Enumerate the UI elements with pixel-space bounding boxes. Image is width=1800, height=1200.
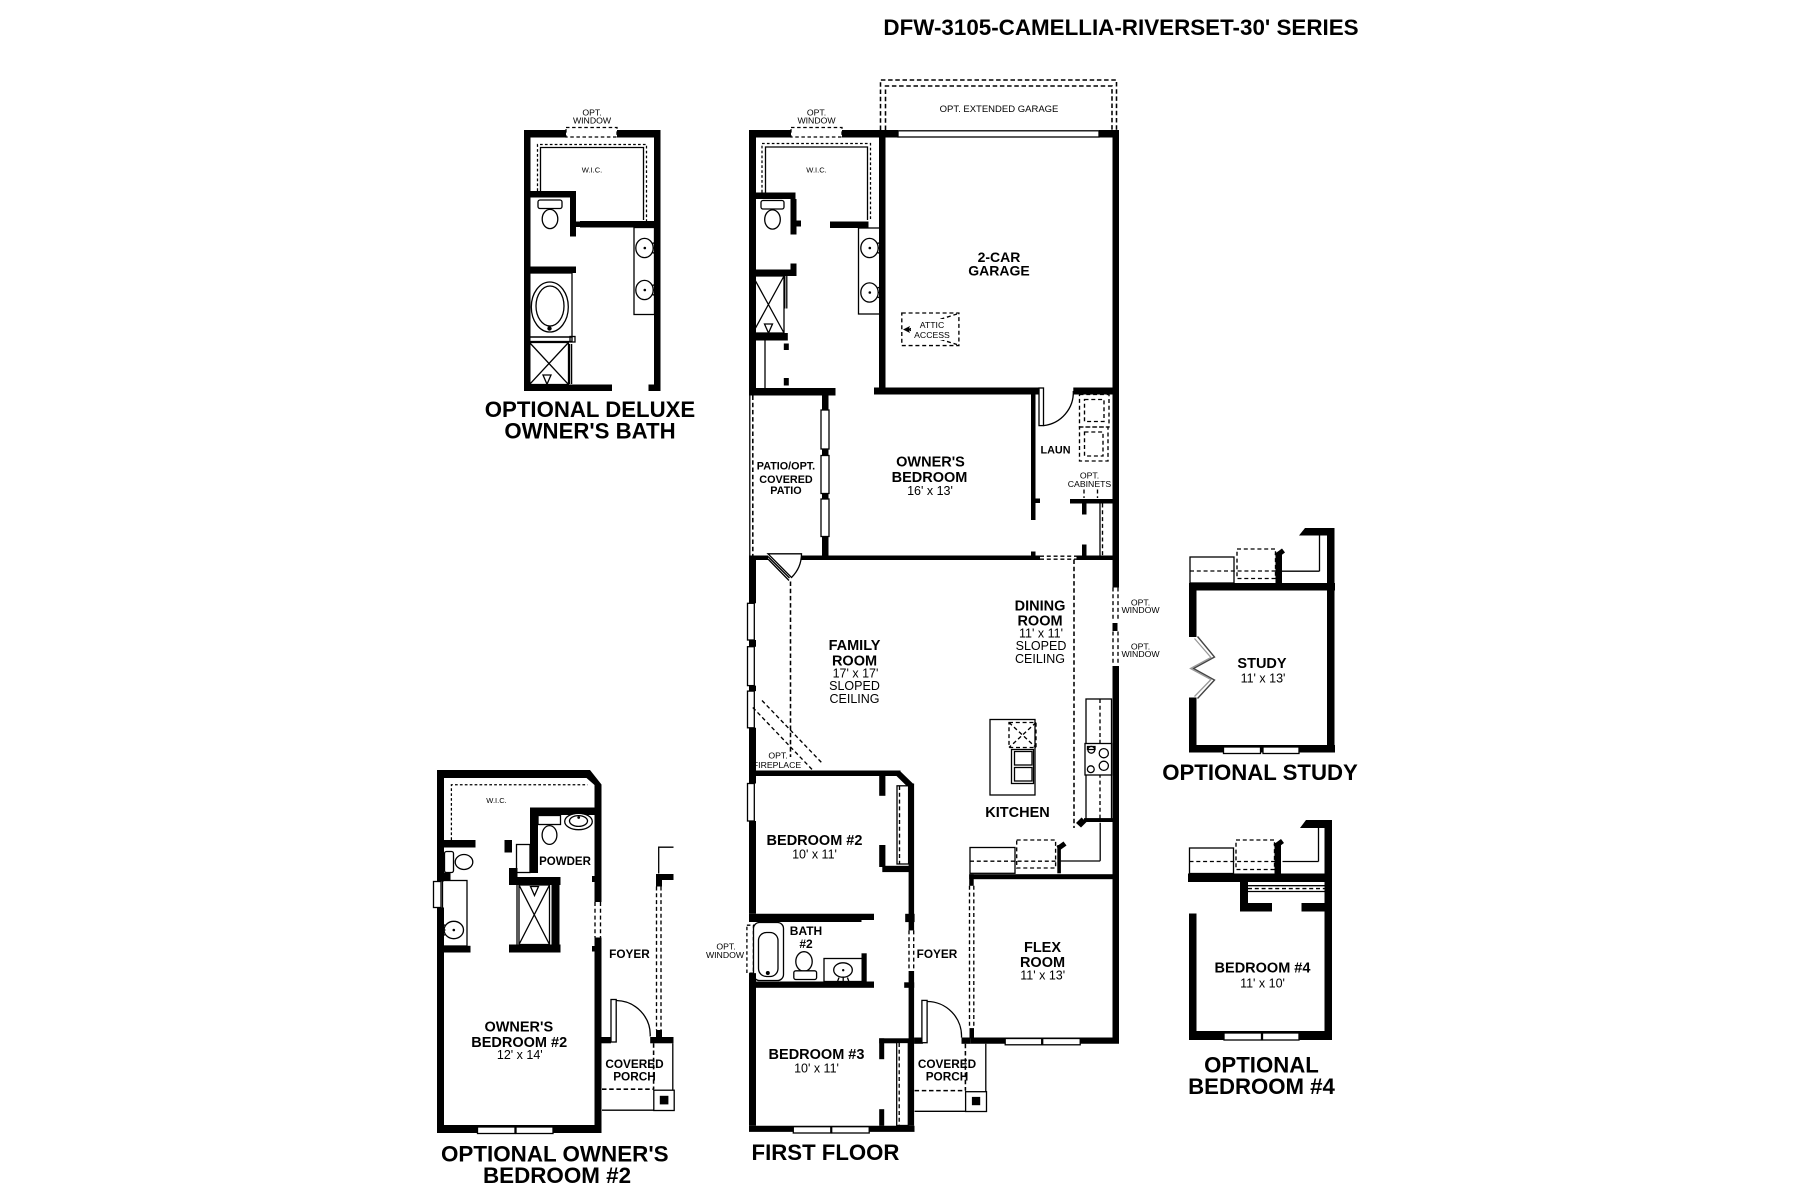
svg-text:CABINETS: CABINETS xyxy=(1068,479,1112,489)
svg-text:DINING: DINING xyxy=(1015,599,1066,615)
svg-text:PORCH: PORCH xyxy=(926,1070,969,1084)
svg-text:DFW-3105-CAMELLIA-RIVERSET-30': DFW-3105-CAMELLIA-RIVERSET-30' SERIES xyxy=(883,15,1358,40)
svg-text:W.I.C.: W.I.C. xyxy=(582,166,602,175)
svg-text:WINDOW: WINDOW xyxy=(573,116,612,126)
svg-text:12' x 14': 12' x 14' xyxy=(497,1048,543,1062)
svg-text:BEDROOM #4: BEDROOM #4 xyxy=(1188,1074,1335,1099)
svg-text:ATTIC: ATTIC xyxy=(920,320,944,330)
svg-text:WINDOW: WINDOW xyxy=(1121,605,1160,615)
svg-text:OWNER'S: OWNER'S xyxy=(484,1020,553,1036)
svg-text:FOYER: FOYER xyxy=(917,947,958,961)
svg-text:BEDROOM #2: BEDROOM #2 xyxy=(483,1163,631,1188)
svg-text:WINDOW: WINDOW xyxy=(706,950,745,960)
svg-text:W.I.C.: W.I.C. xyxy=(806,166,826,175)
svg-text:STUDY: STUDY xyxy=(1237,656,1286,672)
svg-text:FOYER: FOYER xyxy=(609,947,650,961)
svg-text:10' x 11': 10' x 11' xyxy=(794,1062,839,1076)
svg-text:KITCHEN: KITCHEN xyxy=(985,805,1049,821)
svg-text:11' x 10': 11' x 10' xyxy=(1240,977,1285,991)
svg-text:GARAGE: GARAGE xyxy=(968,263,1029,279)
svg-text:FLEX: FLEX xyxy=(1024,940,1061,956)
svg-text:#2: #2 xyxy=(799,937,813,951)
svg-text:11' x 13': 11' x 13' xyxy=(1241,672,1286,686)
svg-text:FIREPLACE: FIREPLACE xyxy=(753,760,801,770)
svg-text:PATIO: PATIO xyxy=(770,485,801,497)
svg-text:11' x 13': 11' x 13' xyxy=(1020,969,1065,983)
svg-text:PATIO/OPT.: PATIO/OPT. xyxy=(757,461,815,473)
svg-text:PORCH: PORCH xyxy=(613,1070,656,1084)
svg-text:BATH: BATH xyxy=(790,924,822,938)
svg-text:SLOPED: SLOPED xyxy=(1016,639,1067,653)
svg-text:16' x 13': 16' x 13' xyxy=(907,484,953,498)
svg-text:OWNER'S: OWNER'S xyxy=(896,455,965,471)
svg-text:ACCESS: ACCESS xyxy=(914,330,950,340)
svg-text:FIRST FLOOR: FIRST FLOOR xyxy=(752,1140,900,1165)
svg-text:CEILING: CEILING xyxy=(1015,652,1065,666)
svg-text:SLOPED: SLOPED xyxy=(829,679,880,693)
svg-text:BEDROOM #4: BEDROOM #4 xyxy=(1215,961,1311,977)
svg-text:CEILING: CEILING xyxy=(829,692,879,706)
svg-text:FAMILY: FAMILY xyxy=(829,638,881,654)
svg-text:OPTIONAL STUDY: OPTIONAL STUDY xyxy=(1162,760,1358,785)
svg-text:WINDOW: WINDOW xyxy=(1121,649,1160,659)
svg-text:LAUN: LAUN xyxy=(1041,445,1071,457)
svg-text:WINDOW: WINDOW xyxy=(797,116,836,126)
svg-text:OPT.: OPT. xyxy=(768,751,787,761)
svg-text:POWDER: POWDER xyxy=(539,856,591,868)
svg-text:OPT. EXTENDED GARAGE: OPT. EXTENDED GARAGE xyxy=(940,104,1059,115)
svg-text:OWNER'S BATH: OWNER'S BATH xyxy=(504,419,675,444)
svg-text:W.I.C.: W.I.C. xyxy=(486,796,506,805)
svg-text:10' x 11': 10' x 11' xyxy=(792,848,837,862)
